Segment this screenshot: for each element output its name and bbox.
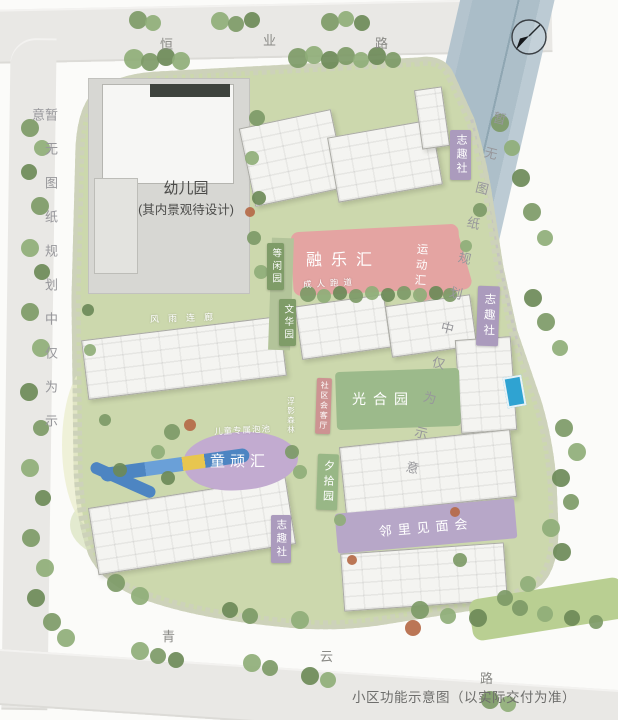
kindergarten-label: 幼儿园 (其内景观待设计) (112, 178, 260, 219)
left-road-notice: 暂无图纸规划中仅为示意 (31, 108, 57, 474)
bottom-road-char: 路 (480, 668, 493, 687)
kindergarten-dark-roof (150, 84, 230, 97)
caption: 小区功能示意图（以实际交付为准） (352, 686, 576, 706)
zhiqushe-right-label: 志趣社 (476, 286, 500, 347)
tongwanhui-label: 童顽汇 (210, 450, 305, 471)
top-road-char: 业 (263, 30, 276, 49)
kindergarten-subtitle: (其内景观待设计) (112, 201, 260, 220)
zhiqushe-top-label: 志趣社 (450, 130, 471, 180)
ronglehui-label: 融乐汇 (306, 246, 426, 270)
kindergarten-title: 幼儿园 (112, 178, 260, 201)
site-plan: 邻里见面会 融乐汇 运动汇 等闲园 文华园 成人跑道 风雨连廊 志趣社 志趣社 … (0, 0, 618, 720)
xishiyuan-label: 夕拾园 (316, 454, 339, 511)
zhiqushe-bottom-label: 志趣社 (271, 515, 291, 563)
guangheyuan-label: 光合园 (352, 389, 456, 409)
fuyingsenlin-label: 浮影森林 (287, 394, 295, 438)
top-road-char: 恒 (160, 34, 173, 53)
shequhuiketing-label: 社区会客厅 (315, 378, 332, 434)
linlijianmianhui-label: 邻里见面会 (378, 512, 474, 539)
kindergarten-building (102, 84, 234, 184)
top-road-char: 路 (375, 33, 388, 52)
dengxianyuan-label: 等闲园 (267, 243, 284, 290)
fengyulianlang-label: 风雨连廊 (150, 310, 222, 326)
wenhuayuan-label: 文华园 (279, 299, 296, 346)
bottom-road-char: 云 (320, 646, 333, 665)
bottom-road-char: 青 (162, 626, 175, 645)
